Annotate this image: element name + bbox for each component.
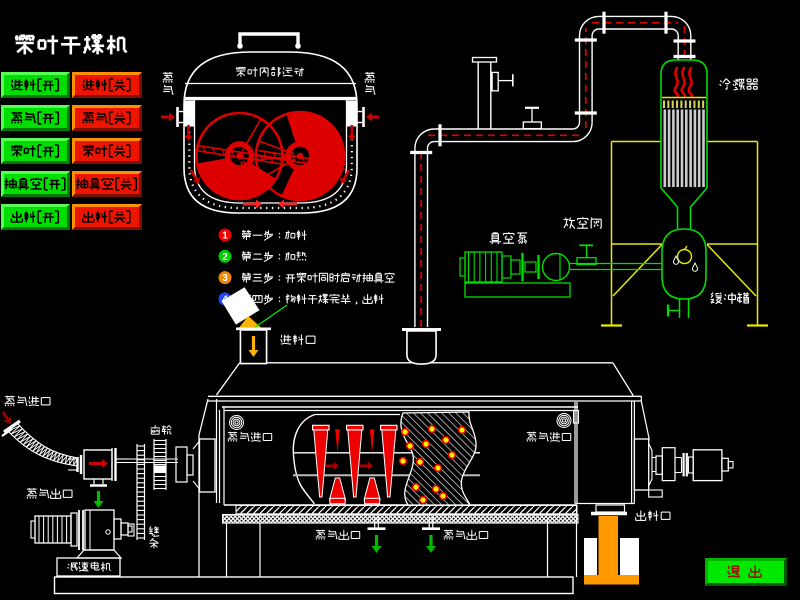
svg-text:2: 2: [222, 252, 228, 263]
svg-text:3: 3: [222, 273, 228, 284]
svg-text:1: 1: [222, 231, 228, 242]
